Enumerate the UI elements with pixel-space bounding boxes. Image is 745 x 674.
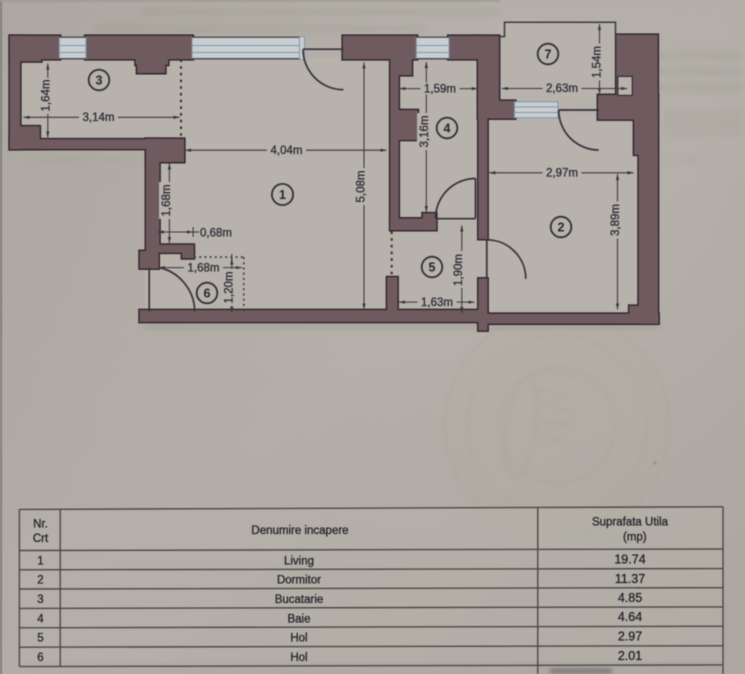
svg-text:1: 1 [37,555,43,567]
svg-text:4: 4 [37,613,44,625]
svg-text:2: 2 [37,575,43,587]
svg-text:4.64: 4.64 [618,610,642,624]
svg-text:6: 6 [204,287,211,301]
svg-text:3: 3 [37,594,43,606]
svg-text:2,63m: 2,63m [546,83,578,95]
svg-text:5: 5 [37,633,43,645]
svg-text:1,20m: 1,20m [224,272,236,304]
svg-text:3,14m: 3,14m [83,112,115,124]
svg-text:0,68m: 0,68m [200,228,232,240]
svg-text:2: 2 [558,221,565,235]
svg-text:Living: Living [284,555,314,567]
svg-text:Crt: Crt [33,533,49,545]
svg-text:2.01: 2.01 [618,649,642,663]
svg-text:1,63m: 1,63m [421,297,453,309]
svg-text:1,59m: 1,59m [424,83,456,95]
svg-text:Hol: Hol [290,652,307,664]
svg-text:5,08m: 5,08m [356,171,368,203]
svg-text:Baie: Baie [287,613,310,625]
svg-text:1,90m: 1,90m [453,254,465,286]
svg-text:5: 5 [429,261,436,275]
svg-text:Denumire incapere: Denumire incapere [251,525,348,537]
svg-text:3,16m: 3,16m [419,116,431,148]
svg-text:Bucatarie: Bucatarie [275,594,324,606]
svg-text:2.97: 2.97 [618,630,642,644]
svg-text:4.85: 4.85 [618,591,642,605]
svg-text:1,68m: 1,68m [188,263,220,275]
svg-text:Dormitor: Dormitor [277,575,321,587]
svg-text:3,89m: 3,89m [610,204,622,236]
svg-text:1: 1 [279,188,286,202]
svg-text:4,04m: 4,04m [271,145,303,157]
svg-text:1,54m: 1,54m [592,46,604,78]
svg-text:4: 4 [444,122,451,136]
svg-text:6: 6 [37,652,43,664]
svg-text:1,68m: 1,68m [161,185,173,217]
svg-text:3: 3 [96,74,103,88]
svg-text:7: 7 [545,48,552,62]
svg-text:(mp): (mp) [623,531,647,543]
svg-text:1,64m: 1,64m [41,80,53,112]
svg-text:Nr.: Nr. [33,519,48,531]
svg-text:2,97m: 2,97m [546,168,578,180]
svg-text:Suprafata Utila: Suprafata Utila [592,517,669,529]
svg-text:11.37: 11.37 [615,572,645,586]
svg-text:19.74: 19.74 [614,552,645,566]
svg-text:Hol: Hol [290,633,307,645]
